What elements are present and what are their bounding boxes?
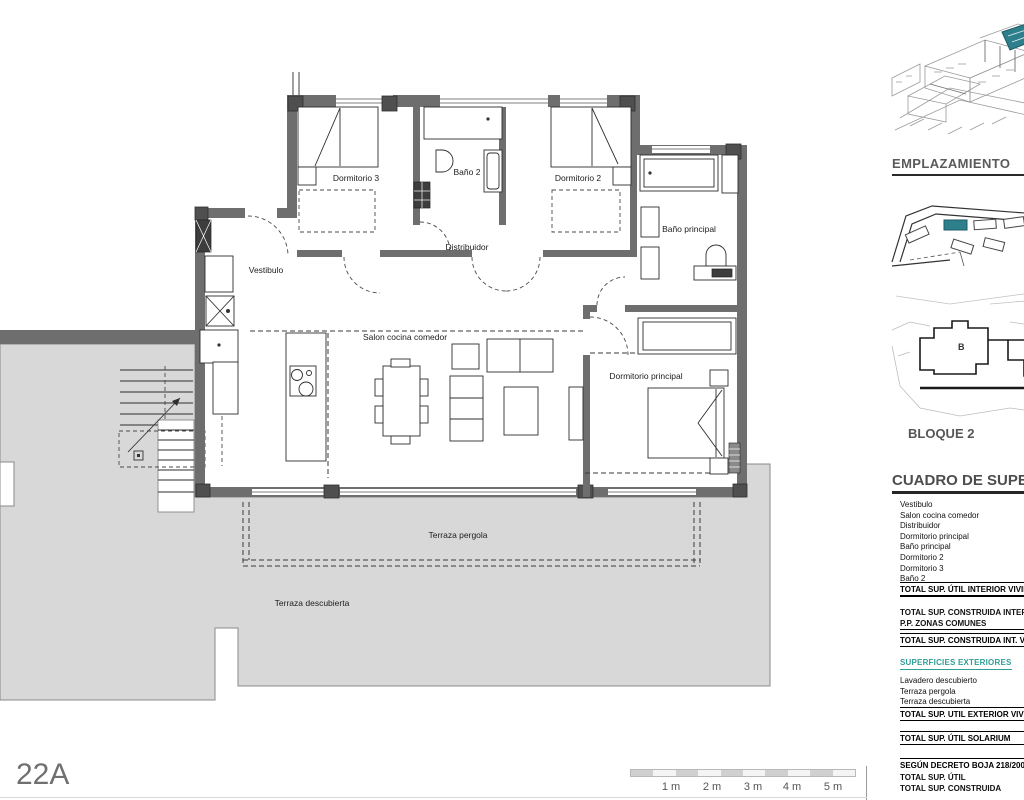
scale-bar-ruler bbox=[630, 769, 856, 777]
table-row: TOTAL SUP. ÚTIL bbox=[900, 773, 1024, 784]
label-distribuidor: Distribuidor bbox=[446, 242, 489, 252]
block-plan-sketch: B bbox=[890, 316, 1024, 422]
furniture-dormitorio2 bbox=[551, 107, 631, 232]
table-row: Dormitorio 3 bbox=[900, 564, 1024, 575]
decreto-heading: SEGÚN DECRETO BOJA 218/2005 bbox=[900, 758, 1024, 771]
table-row: Baño principal bbox=[900, 542, 1024, 553]
label-vestibulo: Vestibulo bbox=[249, 265, 284, 275]
scale-label: 2 m bbox=[703, 781, 721, 793]
table-row: Salon cocina comedor bbox=[900, 511, 1024, 522]
label-dormitorio3: Dormitorio 3 bbox=[333, 173, 380, 183]
table-row: Distribuidor bbox=[900, 521, 1024, 532]
furniture-dormitorio-principal bbox=[638, 318, 740, 474]
scale-label: 5 m bbox=[824, 781, 842, 793]
decreto-rows: TOTAL SUP. ÚTIL TOTAL SUP. CONSTRUIDA bbox=[900, 773, 1024, 794]
page: Dormitorio 3 Baño 2 Dormitorio 2 Baño pr… bbox=[0, 0, 1024, 800]
table-row: Terraza pergola bbox=[900, 687, 1024, 698]
label-terraza-pergola: Terraza pergola bbox=[428, 530, 487, 540]
total-util-interior: TOTAL SUP. ÚTIL INTERIOR VIVIENDA bbox=[900, 582, 1024, 597]
furniture-bano2 bbox=[414, 107, 502, 208]
building-3d-sketch bbox=[890, 18, 1024, 140]
construida-block: TOTAL SUP. CONSTRUIDA INTERIOR VIVIENDA … bbox=[900, 608, 1024, 630]
scale-label: 1 m bbox=[662, 781, 680, 793]
table-row: Vestibulo bbox=[900, 500, 1024, 511]
total-util-exterior: TOTAL SUP. UTIL EXTERIOR VIVIENDA bbox=[900, 707, 1024, 721]
scale-label: 4 m bbox=[783, 781, 801, 793]
superficies-exteriores-heading: SUPERFICIES EXTERIORES bbox=[900, 658, 1012, 670]
scale-label: 3 m bbox=[744, 781, 762, 793]
total-util-solarium: TOTAL SUP. ÚTIL SOLARIUM bbox=[900, 731, 1024, 745]
bottom-rule bbox=[0, 797, 867, 798]
table-row: Dormitorio principal bbox=[900, 532, 1024, 543]
emplazamiento-heading: EMPLAZAMIENTO bbox=[892, 156, 1024, 176]
table-row: Dormitorio 2 bbox=[900, 553, 1024, 564]
label-dormitorio2: Dormitorio 2 bbox=[555, 173, 602, 183]
label-terraza-descubierta: Terraza descubierta bbox=[275, 598, 350, 608]
floor-plan: Dormitorio 3 Baño 2 Dormitorio 2 Baño pr… bbox=[0, 0, 880, 800]
surface-table-interior: Vestibulo Salon cocina comedor Distribui… bbox=[900, 500, 1024, 585]
block-letter: B bbox=[958, 342, 965, 352]
site-plan-sketch bbox=[890, 200, 1024, 314]
terrace-left-opening bbox=[0, 462, 14, 506]
label-bano-principal: Baño principal bbox=[662, 224, 716, 234]
table-row: Lavadero descubierto bbox=[900, 676, 1024, 687]
scale-end-tick bbox=[866, 766, 867, 800]
terrace-parapet bbox=[0, 330, 195, 344]
furniture-dormitorio3 bbox=[298, 107, 378, 232]
label-bano2: Baño 2 bbox=[454, 167, 481, 177]
cuadro-heading: CUADRO DE SUPERFICIES bbox=[892, 472, 1024, 494]
furniture-bano-principal bbox=[640, 155, 738, 280]
table-row: TOTAL SUP. CONSTRUIDA bbox=[900, 784, 1024, 795]
bloque-label: BLOQUE 2 bbox=[908, 426, 974, 441]
total-construida-int: TOTAL SUP. CONSTRUIDA INT. VIVIENDA bbox=[900, 633, 1024, 647]
plan-code: 22A bbox=[16, 758, 69, 792]
scale-bar: 1 m 2 m 3 m 4 m 5 m bbox=[550, 769, 870, 799]
floor-plan-drawing: Dormitorio 3 Baño 2 Dormitorio 2 Baño pr… bbox=[0, 0, 880, 800]
label-dormitorio-principal: Dormitorio principal bbox=[609, 371, 682, 381]
table-row: TOTAL SUP. CONSTRUIDA INTERIOR VIVIENDA bbox=[900, 608, 1024, 619]
furniture-kitchen-living bbox=[200, 330, 583, 461]
label-salon: Salon cocina comedor bbox=[363, 332, 447, 342]
table-row: P.P. ZONAS COMUNES bbox=[900, 619, 1024, 631]
sidebar: EMPLAZAMIENTO bbox=[890, 0, 1024, 800]
surface-table-exterior: Lavadero descubierto Terraza pergola Ter… bbox=[900, 676, 1024, 708]
